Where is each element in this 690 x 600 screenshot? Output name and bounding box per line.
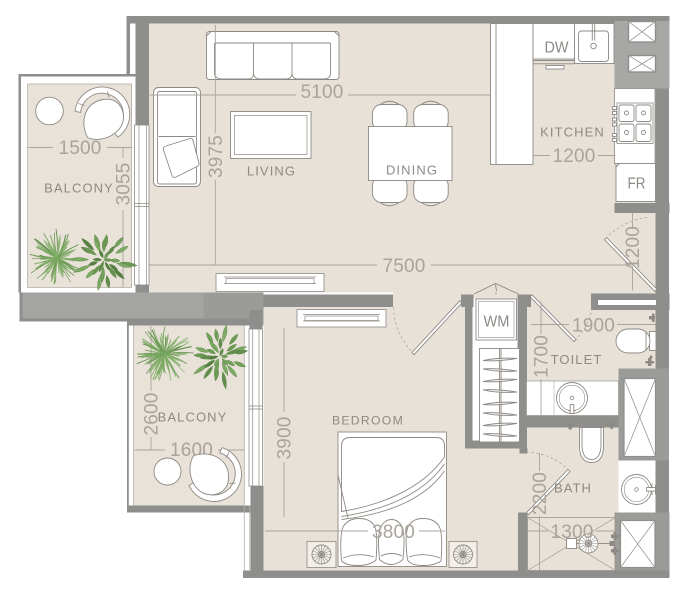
svg-text:3975: 3975 bbox=[206, 135, 227, 178]
svg-text:1200: 1200 bbox=[552, 146, 595, 167]
svg-text:5100: 5100 bbox=[300, 82, 343, 103]
svg-text:1700: 1700 bbox=[532, 335, 553, 378]
svg-text:1300: 1300 bbox=[550, 522, 593, 543]
svg-text:3900: 3900 bbox=[275, 416, 296, 459]
svg-text:3055: 3055 bbox=[114, 162, 135, 205]
svg-text:WM: WM bbox=[484, 314, 510, 331]
svg-text:BALCONY: BALCONY bbox=[44, 181, 114, 196]
svg-text:1200: 1200 bbox=[623, 226, 644, 269]
svg-text:KITCHEN: KITCHEN bbox=[540, 125, 605, 140]
svg-text:BALCONY: BALCONY bbox=[158, 410, 228, 425]
svg-text:7500: 7500 bbox=[382, 256, 425, 277]
svg-text:TOILET: TOILET bbox=[551, 352, 603, 367]
svg-text:BATH: BATH bbox=[554, 481, 592, 496]
svg-text:LIVING: LIVING bbox=[247, 164, 296, 179]
svg-text:DINING: DINING bbox=[386, 163, 438, 178]
svg-text:1900: 1900 bbox=[572, 316, 615, 337]
svg-text:FR: FR bbox=[628, 176, 646, 193]
svg-text:BEDROOM: BEDROOM bbox=[332, 414, 404, 428]
svg-text:3800: 3800 bbox=[372, 522, 415, 543]
svg-text:1500: 1500 bbox=[58, 138, 101, 159]
svg-text:2200: 2200 bbox=[530, 472, 551, 515]
svg-text:DW: DW bbox=[545, 40, 570, 57]
